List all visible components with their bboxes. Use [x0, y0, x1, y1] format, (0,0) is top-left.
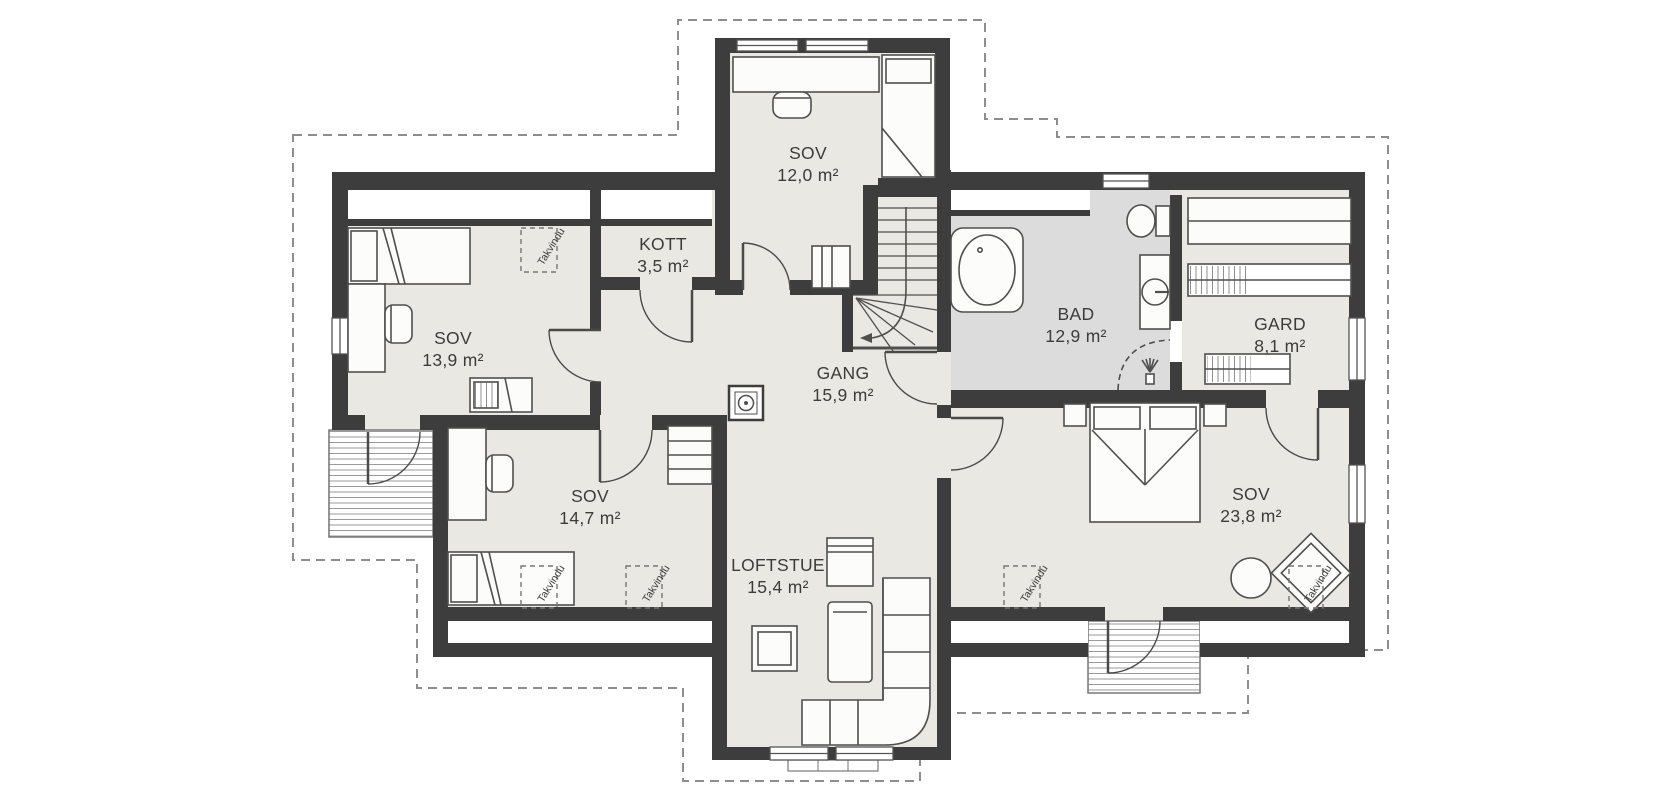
room-name: SOV	[559, 485, 620, 507]
wardrobe-gard-north	[1188, 198, 1351, 244]
clothes-rail-gard-2	[1205, 354, 1290, 384]
room-area: 12,9 m²	[1045, 325, 1106, 347]
washbasin	[1140, 255, 1170, 329]
room-area: 15,9 m²	[812, 384, 873, 406]
dresser-sov12	[812, 246, 850, 288]
bed-sov139	[348, 228, 470, 284]
coffee-table-loftstue	[828, 602, 872, 682]
room-label-sov238: SOV 23,8 m²	[1220, 483, 1281, 528]
room-area: 13,9 m²	[422, 349, 483, 371]
room-area: 23,8 m²	[1220, 505, 1281, 527]
nightstand-left	[1064, 404, 1086, 426]
room-label-sov12: SOV 12,0 m²	[777, 142, 838, 187]
chimney	[729, 386, 763, 420]
armchair-loftstue	[827, 538, 873, 586]
south-balcony	[1088, 621, 1200, 693]
room-name: GANG	[812, 362, 873, 384]
side-table-loftstue	[752, 626, 797, 671]
room-label-kott: KOTT 3,5 m²	[637, 233, 688, 278]
room-name: SOV	[777, 142, 838, 164]
room-label-loftstue: LOFTSTUE 15,4 m²	[731, 554, 825, 599]
round-table-sov238	[1231, 558, 1271, 598]
floorplan-page: Takvindu Takvindu Takvindu Takvindu Takv…	[0, 0, 1670, 800]
room-label-gang: GANG 15,9 m²	[812, 362, 873, 407]
dresser-sov139	[470, 378, 532, 412]
room-label-sov139: SOV 13,9 m²	[422, 327, 483, 372]
west-balcony	[329, 430, 433, 537]
room-label-bad: BAD 12,9 m²	[1045, 303, 1106, 348]
cabinet-sov147	[668, 426, 712, 484]
room-name: SOV	[1220, 483, 1281, 505]
clothes-rail-gard-1	[1188, 264, 1351, 296]
room-label-sov147: SOV 14,7 m²	[559, 485, 620, 530]
bed-sov12	[882, 55, 935, 177]
double-bed-sov238	[1090, 403, 1200, 522]
room-area: 3,5 m²	[637, 255, 688, 277]
bathtub	[951, 228, 1023, 312]
room-name: GARD	[1254, 313, 1306, 335]
room-area: 14,7 m²	[559, 507, 620, 529]
room-label-gard: GARD 8,1 m²	[1254, 313, 1306, 358]
room-area: 12,0 m²	[777, 164, 838, 186]
room-area: 15,4 m²	[731, 576, 825, 598]
loftstue-porch	[788, 760, 878, 771]
nightstand-right	[1204, 404, 1226, 426]
room-area: 8,1 m²	[1254, 335, 1306, 357]
room-name: KOTT	[637, 233, 688, 255]
toilet	[1127, 205, 1170, 237]
room-name: LOFTSTUE	[731, 554, 825, 576]
room-name: SOV	[422, 327, 483, 349]
room-name: BAD	[1045, 303, 1106, 325]
